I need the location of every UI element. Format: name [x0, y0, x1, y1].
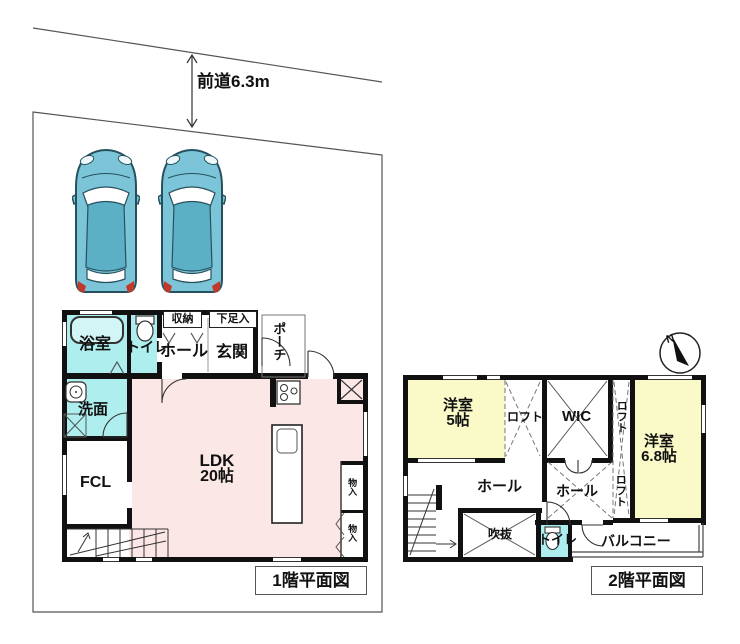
wall [668, 518, 706, 523]
wall [363, 377, 368, 557]
room-label-room5: 洋室 5帖 [422, 398, 494, 429]
room-label-shoe-cabinet: 下足入 [217, 313, 250, 325]
floor2-stairs [408, 489, 456, 555]
room-label-ldk: LDK 20帖 [180, 452, 254, 486]
floor1-title: 1階平面図 [272, 571, 349, 590]
room5-size: 5帖 [422, 413, 494, 428]
room-label-hall-left: ホール [477, 479, 522, 494]
room-label-entrance: 玄関 [216, 345, 248, 361]
room-label-porch: ポーチ [272, 322, 285, 372]
wall [341, 461, 368, 465]
room-label-toilet2f: トイレ [538, 533, 577, 546]
window [403, 476, 408, 496]
wall [603, 520, 613, 525]
room-label-balcony: バルコニー [601, 534, 671, 548]
window [640, 518, 668, 523]
wall [337, 379, 341, 402]
wall [62, 436, 127, 441]
room-label-bath: 浴室 [79, 337, 111, 353]
wall [270, 379, 276, 407]
room-label-loft-lower: ロフト [614, 474, 625, 507]
car-top-view [72, 150, 226, 293]
ldk-name: LDK [180, 452, 254, 469]
window [273, 557, 301, 562]
wall [403, 375, 408, 562]
room5-name: 洋室 [422, 398, 494, 413]
window [136, 557, 152, 562]
wall [337, 400, 368, 404]
room-label-room68: 洋室 6.8帖 [625, 434, 693, 465]
floorplan-canvas: N 前道6.3m 浴室 トイレ 収納 下足入 ホール 玄関 ポーチ 洗面 FCL… [0, 0, 740, 644]
floor2-title-box: 2階平面図 [591, 566, 703, 595]
wall [458, 508, 463, 557]
road-width-label: 前道6.3m [197, 73, 270, 90]
wall [542, 375, 547, 502]
room-label-storage: 収納 [172, 313, 194, 325]
wall [403, 557, 573, 562]
wall [62, 524, 132, 529]
window [648, 375, 692, 380]
window [418, 458, 475, 463]
shoe-cabinet-box: 下足入 [209, 311, 257, 328]
wall [613, 518, 640, 523]
wall [592, 458, 613, 463]
wall [341, 510, 368, 513]
room-label-void: 吹抜 [488, 528, 512, 540]
window [443, 375, 477, 380]
room-label-hall1f: ホール [160, 344, 208, 360]
window [701, 405, 706, 433]
storage-box: 収納 [163, 311, 202, 328]
wall [458, 508, 542, 513]
room-label-closet-lower: 物入 [347, 524, 356, 542]
window [363, 412, 368, 456]
room-label-hall-center: ホール [556, 484, 598, 498]
floor2-title: 2階平面図 [608, 571, 685, 590]
door-opening [127, 482, 132, 508]
room68-size: 6.8帖 [625, 449, 693, 464]
room-label-closet-upper: 物入 [347, 478, 356, 496]
window [62, 455, 67, 495]
wall [436, 485, 442, 510]
floor1-title-box: 1階平面図 [255, 566, 367, 595]
room68-name: 洋室 [625, 434, 693, 449]
wall [182, 373, 308, 379]
wall [403, 458, 418, 463]
room-label-loft-left: ロフト [507, 411, 543, 423]
room-label-wic: WIC [562, 409, 591, 424]
room-label-loft-mid: ロフト [615, 400, 626, 433]
room-label-fcl: FCL [80, 475, 111, 491]
window [487, 375, 500, 380]
wall [701, 375, 706, 525]
wall [542, 458, 565, 463]
window [103, 557, 119, 562]
wall [475, 458, 505, 463]
wall [535, 520, 582, 525]
wall [608, 375, 613, 463]
compass-north-label: N [665, 332, 676, 346]
ldk-size: 20帖 [180, 469, 254, 485]
wall [62, 373, 162, 379]
window [62, 322, 67, 346]
room-label-washroom: 洗面 [78, 402, 108, 417]
window [80, 310, 112, 315]
compass-icon: N [660, 332, 700, 373]
